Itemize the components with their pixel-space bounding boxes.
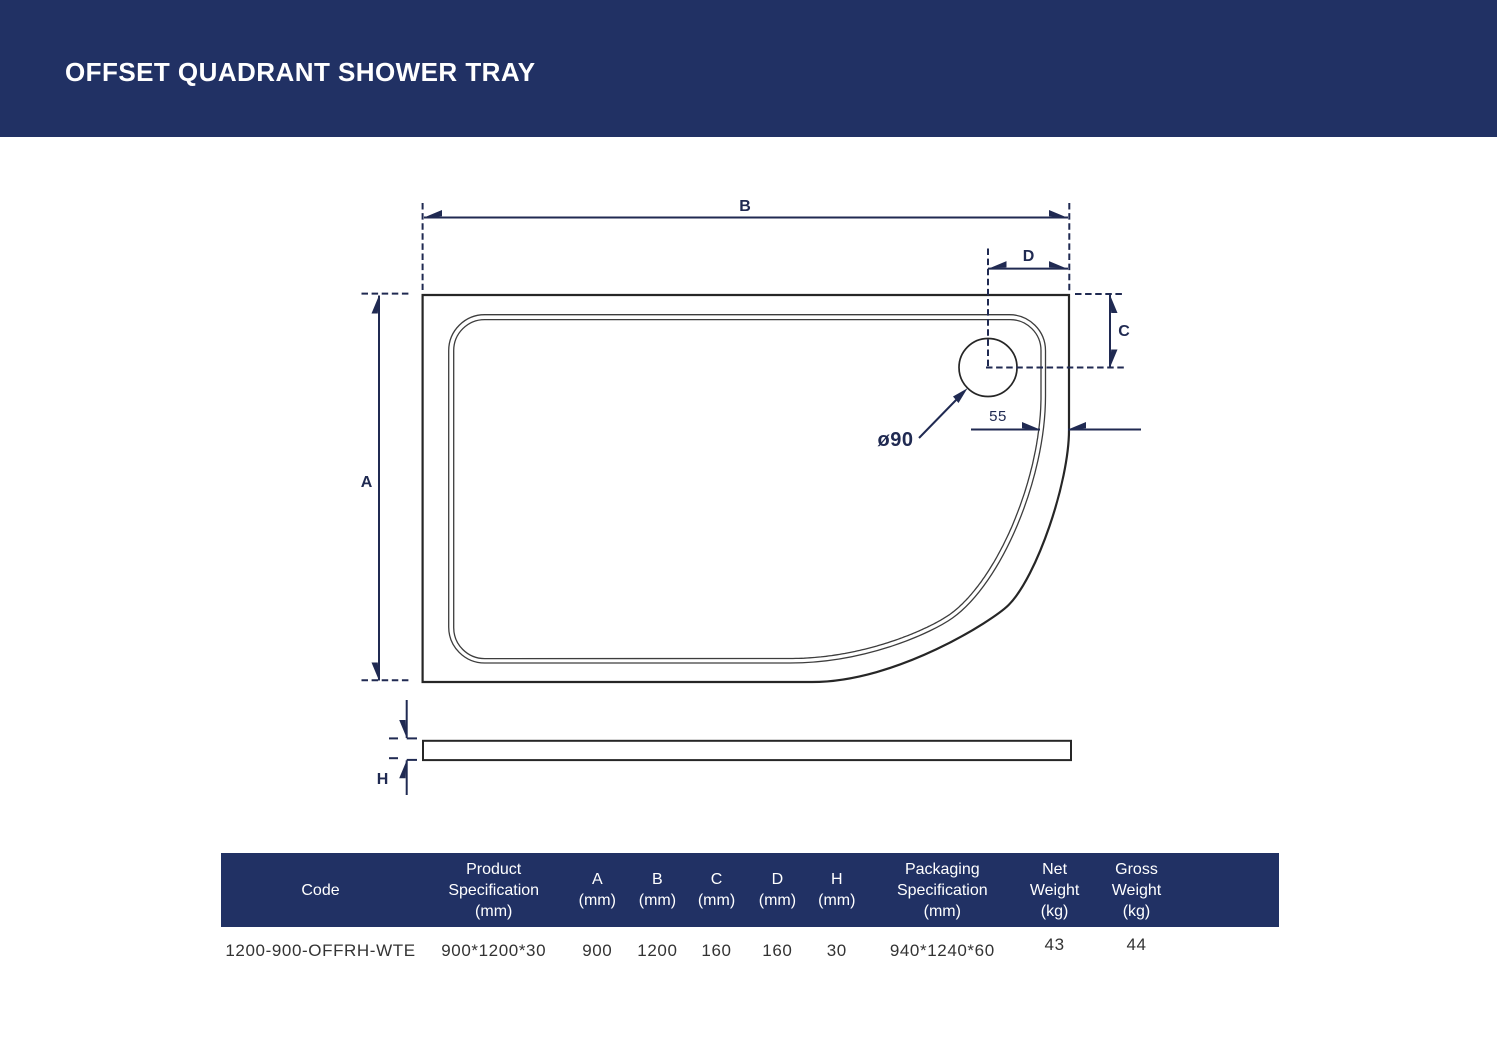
svg-text:A: A <box>361 474 373 491</box>
svg-text:H: H <box>377 771 389 788</box>
svg-text:B: B <box>739 198 751 215</box>
svg-text:55: 55 <box>989 408 1007 425</box>
svg-text:D: D <box>1023 248 1035 265</box>
svg-text:C: C <box>1118 323 1130 340</box>
svg-text:ø90: ø90 <box>878 429 914 451</box>
